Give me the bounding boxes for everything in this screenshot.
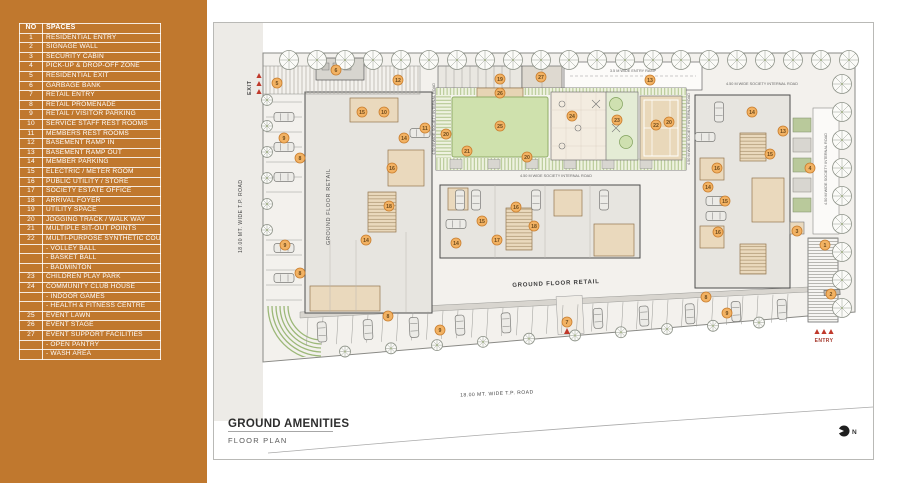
legend-row: 4PICK-UP & DROP-OFF ZONE — [20, 62, 161, 72]
plan-marker-number: 8 — [299, 271, 302, 277]
plan-marker: 16 — [511, 202, 521, 212]
car-icon — [274, 274, 294, 283]
car-icon — [446, 220, 466, 229]
tree-icon — [386, 343, 397, 354]
legend-row-number: 23 — [20, 273, 43, 283]
plan-marker: 14 — [451, 238, 461, 248]
tree-icon — [833, 187, 852, 206]
legend-row-label: MULTIPLE SIT-OUT POINTS — [43, 225, 161, 235]
plan-marker-number: 20 — [524, 155, 530, 161]
legend-row-label: - VOLLEY BALL — [43, 244, 161, 254]
legend-row-number: 15 — [20, 167, 43, 177]
plan-marker: 3 — [792, 226, 802, 236]
legend-row-number: 7 — [20, 91, 43, 101]
page-subtitle: FLOOR PLAN — [228, 436, 288, 445]
legend-row-number: 22 — [20, 235, 43, 245]
legend-row-number: 17 — [20, 187, 43, 197]
tree-icon — [812, 51, 831, 70]
plan-marker: 13 — [778, 126, 788, 136]
legend-row: 11MEMBERS REST ROOMS — [20, 129, 161, 139]
legend-row-label: EVENT SUPPORT FACILITIES — [43, 331, 161, 341]
car-icon — [639, 306, 649, 326]
legend-row-label: RETAIL PROMENADE — [43, 100, 161, 110]
car-icon — [317, 322, 327, 342]
tree-icon — [262, 121, 273, 132]
legend-row: 20JOGGING TRACK / WALK WAY — [20, 215, 161, 225]
plan-marker: 11 — [420, 123, 430, 133]
entry-label: ENTRY — [815, 338, 834, 344]
tree-icon — [784, 51, 803, 70]
car-icon — [593, 308, 603, 328]
legend-row-number: 25 — [20, 311, 43, 321]
legend-row: 25EVENT LAWN — [20, 311, 161, 321]
legend-row-number: 4 — [20, 62, 43, 72]
tree-icon — [672, 51, 691, 70]
legend-row-label: - HEALTH & FITNESS CENTRE — [43, 302, 161, 312]
legend-row: 16PUBLIC UTILITY / STORE — [20, 177, 161, 187]
plan-marker-number: 10 — [381, 110, 387, 116]
plan-marker: 12 — [393, 75, 403, 85]
legend-row-number — [20, 254, 43, 264]
plan-marker-number: 9 — [726, 311, 729, 317]
legend-row-number: 24 — [20, 283, 43, 293]
legend-row-number: 10 — [20, 119, 43, 129]
plan-marker: 15 — [720, 196, 730, 206]
legend-row-number: 3 — [20, 52, 43, 62]
plan-marker: 6 — [331, 65, 341, 75]
internal-road-label: 4.50 M WIDE SOCIETY INTERNAL ROAD — [687, 93, 691, 165]
plan-marker: 13 — [645, 75, 655, 85]
plan-marker-number: 25 — [497, 124, 503, 130]
legend-row: - VOLLEY BALL — [20, 244, 161, 254]
legend-row-label: - WASH AREA — [43, 350, 161, 360]
community-club-house — [551, 92, 608, 160]
legend-row: - WASH AREA — [20, 350, 161, 360]
plan-marker: 15 — [477, 216, 487, 226]
legend-row-number: 9 — [20, 110, 43, 120]
tree-icon — [262, 95, 273, 106]
car-icon — [409, 317, 419, 337]
plan-marker: 7 — [562, 317, 572, 327]
tree-icon — [524, 333, 535, 344]
synthetic-court — [640, 96, 682, 160]
amenity-deck — [436, 88, 686, 170]
legend-row-number: 18 — [20, 196, 43, 206]
plan-marker-number: 26 — [497, 91, 503, 97]
plan-marker: 5 — [272, 78, 282, 88]
legend-row-label: - BASKET BALL — [43, 254, 161, 264]
tree-icon — [280, 51, 299, 70]
plan-marker: 14 — [361, 235, 371, 245]
tree-icon — [532, 51, 551, 70]
plan-marker-number: 8 — [387, 314, 390, 320]
legend-row-label: UTILITY SPACE — [43, 206, 161, 216]
car-icon — [274, 173, 294, 182]
plan-marker: 10 — [379, 107, 389, 117]
legend-row-number: 13 — [20, 148, 43, 158]
legend-row: - BASKET BALL — [20, 254, 161, 264]
legend-row-number: 1 — [20, 33, 43, 43]
legend-row: 18ARRIVAL FOYER — [20, 196, 161, 206]
plan-marker-number: 13 — [647, 78, 653, 84]
plan-marker-number: 8 — [705, 295, 708, 301]
plan-marker-number: 11 — [422, 126, 428, 132]
car-icon — [472, 190, 481, 210]
legend-row-number: 27 — [20, 331, 43, 341]
plan-marker: 15 — [357, 107, 367, 117]
plan-marker: 16 — [712, 163, 722, 173]
plan-marker: 18 — [529, 221, 539, 231]
legend-row: 22MULTI-PURPOSE SYNTHETIC COURT — [20, 235, 161, 245]
car-icon — [685, 304, 695, 324]
plan-marker: 8 — [701, 292, 711, 302]
tree-icon — [262, 147, 273, 158]
legend-row: 23CHILDREN PLAY PARK — [20, 273, 161, 283]
plan-marker: 8 — [383, 311, 393, 321]
legend-row: - HEALTH & FITNESS CENTRE — [20, 302, 161, 312]
tree-icon — [833, 159, 852, 178]
internal-road-label: 4.50 M WIDE SOCIETY INTERNAL ROAD — [520, 174, 592, 178]
tree-icon — [833, 271, 852, 290]
children-play-park — [606, 92, 638, 160]
plan-marker-number: 7 — [566, 320, 569, 326]
legend-row-number: 6 — [20, 81, 43, 91]
page-title: GROUND AMENITIES — [228, 418, 349, 430]
exit-label: EXIT — [247, 80, 253, 95]
plan-marker-number: 20 — [666, 120, 672, 126]
legend-row: 5RESIDENTIAL EXIT — [20, 71, 161, 81]
tree-icon — [262, 225, 273, 236]
legend-row-label: BASEMENT RAMP OUT — [43, 148, 161, 158]
legend-row-number: 26 — [20, 321, 43, 331]
car-icon — [363, 319, 373, 339]
tree-icon — [262, 199, 273, 210]
legend-row-label: - OPEN PANTRY — [43, 340, 161, 350]
legend-row-label: SERVICE STAFF REST ROOMS — [43, 119, 161, 129]
legend-row-label: PUBLIC UTILITY / STORE — [43, 177, 161, 187]
legend-row-label: PICK-UP & DROP-OFF ZONE — [43, 62, 161, 72]
tree-icon — [392, 51, 411, 70]
legend-header-spaces: SPACES — [43, 24, 161, 34]
utility-space-row — [438, 66, 522, 90]
legend-panel: NO SPACES 1RESIDENTIAL ENTRY2SIGNAGE WAL… — [0, 0, 207, 483]
legend-row-number — [20, 340, 43, 350]
plan-marker-number: 9 — [439, 328, 442, 334]
legend-row-label: BASEMENT RAMP IN — [43, 139, 161, 149]
tree-icon — [560, 51, 579, 70]
plan-marker: 17 — [492, 235, 502, 245]
tree-icon — [570, 330, 581, 341]
tree-icon — [308, 51, 327, 70]
plan-marker: 20 — [441, 129, 451, 139]
plan-marker: 19 — [495, 74, 505, 84]
plan-marker-number: 15 — [722, 199, 728, 205]
plan-marker: 8 — [295, 153, 305, 163]
plan-marker-number: 12 — [395, 78, 401, 84]
plan-marker: 16 — [713, 227, 723, 237]
plan-marker-number: 3 — [796, 229, 799, 235]
plan-marker: 18 — [384, 201, 394, 211]
tree-icon — [708, 320, 719, 331]
tree-icon — [756, 51, 775, 70]
retail-entry-walkway — [556, 295, 584, 334]
legend-row: 7RETAIL ENTRY — [20, 91, 161, 101]
tree-icon — [644, 51, 663, 70]
plan-marker-number: 14 — [749, 110, 755, 116]
legend-row-label: SECURITY CABIN — [43, 52, 161, 62]
legend-row: - BADMINTON — [20, 263, 161, 273]
entry-arrows-icon — [814, 329, 833, 334]
legend-row-label: RESIDENTIAL EXIT — [43, 71, 161, 81]
legend-row-number: 8 — [20, 100, 43, 110]
north-label: N — [852, 429, 857, 436]
plan-marker-number: 9 — [284, 243, 287, 249]
legend-row: 9RETAIL / VISITOR PARKING — [20, 110, 161, 120]
car-icon — [456, 190, 465, 210]
legend-row-number — [20, 263, 43, 273]
plan-marker-number: 14 — [401, 136, 407, 142]
plan-marker-number: 18 — [386, 204, 392, 210]
legend-row: 6GARBAGE BANK — [20, 81, 161, 91]
tree-icon — [728, 51, 747, 70]
plan-marker-number: 20 — [443, 132, 449, 138]
plan-marker: 23 — [612, 115, 622, 125]
plan-marker: 14 — [747, 107, 757, 117]
plan-marker-number: 15 — [767, 152, 773, 158]
plan-marker: 14 — [703, 182, 713, 192]
legend-row-label: SIGNAGE WALL — [43, 43, 161, 53]
entry-ramp-label: 3.5 M WIDE ENTRY RAMP — [610, 69, 657, 73]
legend-row-label: RESIDENTIAL ENTRY — [43, 33, 161, 43]
left-road-label: 18.00 MT. WIDE T.P. ROAD — [238, 179, 244, 253]
legend-row: 12BASEMENT RAMP IN — [20, 139, 161, 149]
internal-road-label: 4.50 M WIDE SOCIETY INTERNAL ROAD — [824, 133, 828, 205]
car-icon — [731, 301, 741, 321]
plan-marker: 9 — [435, 325, 445, 335]
car-icon — [600, 190, 609, 210]
legend-header-row: NO SPACES — [20, 24, 161, 34]
plan-marker-number: 14 — [363, 238, 369, 244]
plan-marker-number: 14 — [453, 241, 459, 247]
legend-row: 17SOCIETY ESTATE OFFICE — [20, 187, 161, 197]
tree-icon — [833, 75, 852, 94]
tree-icon — [833, 243, 852, 262]
legend-row-number: 14 — [20, 158, 43, 168]
legend-row: 3SECURITY CABIN — [20, 52, 161, 62]
plan-marker-number: 16 — [714, 166, 720, 172]
legend-row-number: 12 — [20, 139, 43, 149]
legend-row-label: RETAIL / VISITOR PARKING — [43, 110, 161, 120]
legend-row-label: MULTI-PURPOSE SYNTHETIC COURT — [43, 235, 161, 245]
legend-row-number: 19 — [20, 206, 43, 216]
plan-marker-number: 16 — [513, 205, 519, 211]
tree-icon — [833, 299, 852, 318]
plan-marker-number: 19 — [497, 77, 503, 83]
car-icon — [695, 133, 715, 142]
legend-row: 21MULTIPLE SIT-OUT POINTS — [20, 225, 161, 235]
plan-marker-number: 16 — [715, 230, 721, 236]
legend-row-label: COMMUNITY CLUB HOUSE — [43, 283, 161, 293]
car-icon — [706, 212, 726, 221]
legend-row: 1RESIDENTIAL ENTRY — [20, 33, 161, 43]
tree-icon — [833, 215, 852, 234]
legend-row-label: EVENT STAGE — [43, 321, 161, 331]
legend-row: 8RETAIL PROMENADE — [20, 100, 161, 110]
legend-row-label: JOGGING TRACK / WALK WAY — [43, 215, 161, 225]
legend-row-label: RETAIL ENTRY — [43, 91, 161, 101]
legend-row: 19UTILITY SPACE — [20, 206, 161, 216]
page: NO SPACES 1RESIDENTIAL ENTRY2SIGNAGE WAL… — [0, 0, 910, 483]
plan-marker-number: 9 — [283, 136, 286, 142]
legend-row-label: MEMBERS REST ROOMS — [43, 129, 161, 139]
plan-marker: 1 — [820, 240, 830, 250]
plan-marker: 14 — [399, 133, 409, 143]
legend-row-label: ELECTRIC / METER ROOM — [43, 167, 161, 177]
legend-row-label: GARBAGE BANK — [43, 81, 161, 91]
plan-marker: 20 — [664, 117, 674, 127]
legend-row-number — [20, 244, 43, 254]
tree-icon — [754, 317, 765, 328]
plan-marker: 2 — [826, 289, 836, 299]
tree-icon — [840, 51, 859, 70]
plan-marker: 27 — [536, 72, 546, 82]
plan-marker: 26 — [495, 88, 505, 98]
car-icon — [532, 190, 541, 210]
tree-icon — [420, 51, 439, 70]
legend-row: 2SIGNAGE WALL — [20, 43, 161, 53]
plan-marker-number: 13 — [780, 129, 786, 135]
tree-icon — [588, 51, 607, 70]
legend-header-no: NO — [20, 24, 43, 34]
legend-row-number: 11 — [20, 129, 43, 139]
plan-marker-number: 22 — [653, 123, 659, 129]
legend-row-label: - BADMINTON — [43, 263, 161, 273]
legend-row: - INDOOR GAMES — [20, 292, 161, 302]
legend-row: 15ELECTRIC / METER ROOM — [20, 167, 161, 177]
legend-row-number: 20 — [20, 215, 43, 225]
plan-marker: 9 — [280, 240, 290, 250]
car-icon — [715, 102, 724, 122]
tree-icon — [340, 346, 351, 357]
plan-marker-number: 21 — [464, 149, 470, 155]
legend-row: - OPEN PANTRY — [20, 340, 161, 350]
tree-icon — [700, 51, 719, 70]
plan-marker: 4 — [805, 163, 815, 173]
plan-marker-number: 15 — [479, 219, 485, 225]
plan-marker-number: 16 — [389, 166, 395, 172]
legend-row-label: SOCIETY ESTATE OFFICE — [43, 187, 161, 197]
plan-marker: 24 — [567, 111, 577, 121]
legend-row-number: 16 — [20, 177, 43, 187]
car-icon — [501, 313, 511, 333]
plan-marker-number: 24 — [569, 114, 575, 120]
plan-marker: 20 — [522, 152, 532, 162]
plan-marker-number: 17 — [494, 238, 500, 244]
plan-marker-number: 6 — [335, 68, 338, 74]
tree-icon — [662, 324, 673, 335]
car-icon — [274, 113, 294, 122]
legend-row-number — [20, 292, 43, 302]
internal-road-label: 4.50 M WIDE SOCIETY INTERNAL ROAD — [432, 83, 436, 155]
legend-row-number — [20, 350, 43, 360]
plan-marker-number: 2 — [830, 292, 833, 298]
plan-marker-number: 18 — [531, 224, 537, 230]
tree-icon — [616, 327, 627, 338]
legend-row: 14MEMBER PARKING — [20, 158, 161, 168]
tree-icon — [432, 340, 443, 351]
legend-row: 10SERVICE STAFF REST ROOMS — [20, 119, 161, 129]
tree-icon — [448, 51, 467, 70]
legend-row-number — [20, 302, 43, 312]
legend-row: 24COMMUNITY CLUB HOUSE — [20, 283, 161, 293]
plan-marker-number: 15 — [359, 110, 365, 116]
left-building — [305, 92, 432, 313]
legend-row: 13BASEMENT RAMP OUT — [20, 148, 161, 158]
car-icon — [455, 315, 465, 335]
tree-icon — [833, 131, 852, 150]
plan-marker: 9 — [279, 133, 289, 143]
plan-marker: 9 — [722, 308, 732, 318]
plan-marker: 16 — [387, 163, 397, 173]
internal-road-label: 4.50 M WIDE SOCIETY INTERNAL ROAD — [726, 82, 798, 86]
plan-marker-number: 1 — [824, 243, 827, 249]
plan-marker: 8 — [295, 268, 305, 278]
tree-icon — [504, 51, 523, 70]
tree-icon — [476, 51, 495, 70]
car-icon — [274, 143, 294, 152]
tree-icon — [262, 173, 273, 184]
legend-row-number: 5 — [20, 71, 43, 81]
legend-row: 26EVENT STAGE — [20, 321, 161, 331]
tree-icon — [616, 51, 635, 70]
plan-marker-number: 5 — [276, 81, 279, 87]
tree-icon — [478, 336, 489, 347]
legend-row-number: 21 — [20, 225, 43, 235]
car-icon — [777, 299, 787, 319]
plan-marker: 21 — [462, 146, 472, 156]
legend-row-label: MEMBER PARKING — [43, 158, 161, 168]
ground-floor-retail-label-vertical: GROUND FLOOR RETAIL — [326, 168, 332, 245]
plan-marker-number: 14 — [705, 185, 711, 191]
tree-icon — [364, 51, 383, 70]
plan-marker: 25 — [495, 121, 505, 131]
tree-icon — [833, 103, 852, 122]
legend-table: NO SPACES 1RESIDENTIAL ENTRY2SIGNAGE WAL… — [19, 23, 161, 360]
plan-marker: 22 — [651, 120, 661, 130]
plan-marker-number: 8 — [299, 156, 302, 162]
legend-row-number: 2 — [20, 43, 43, 53]
legend-row: 27EVENT SUPPORT FACILITIES — [20, 331, 161, 341]
floor-plan: 18.00 MT. WIDE T.P. ROAD 18.00 MT. WIDE … — [207, 0, 910, 483]
plan-marker-number: 23 — [614, 118, 620, 124]
legend-row-label: CHILDREN PLAY PARK — [43, 273, 161, 283]
legend-row-label: ARRIVAL FOYER — [43, 196, 161, 206]
legend-row-label: - INDOOR GAMES — [43, 292, 161, 302]
plan-marker-number: 27 — [538, 75, 544, 81]
plan-marker-number: 4 — [809, 166, 812, 172]
plan-marker: 15 — [765, 149, 775, 159]
floor-plan-drawing: 18.00 MT. WIDE T.P. ROAD 18.00 MT. WIDE … — [207, 0, 910, 483]
legend-row-label: EVENT LAWN — [43, 311, 161, 321]
